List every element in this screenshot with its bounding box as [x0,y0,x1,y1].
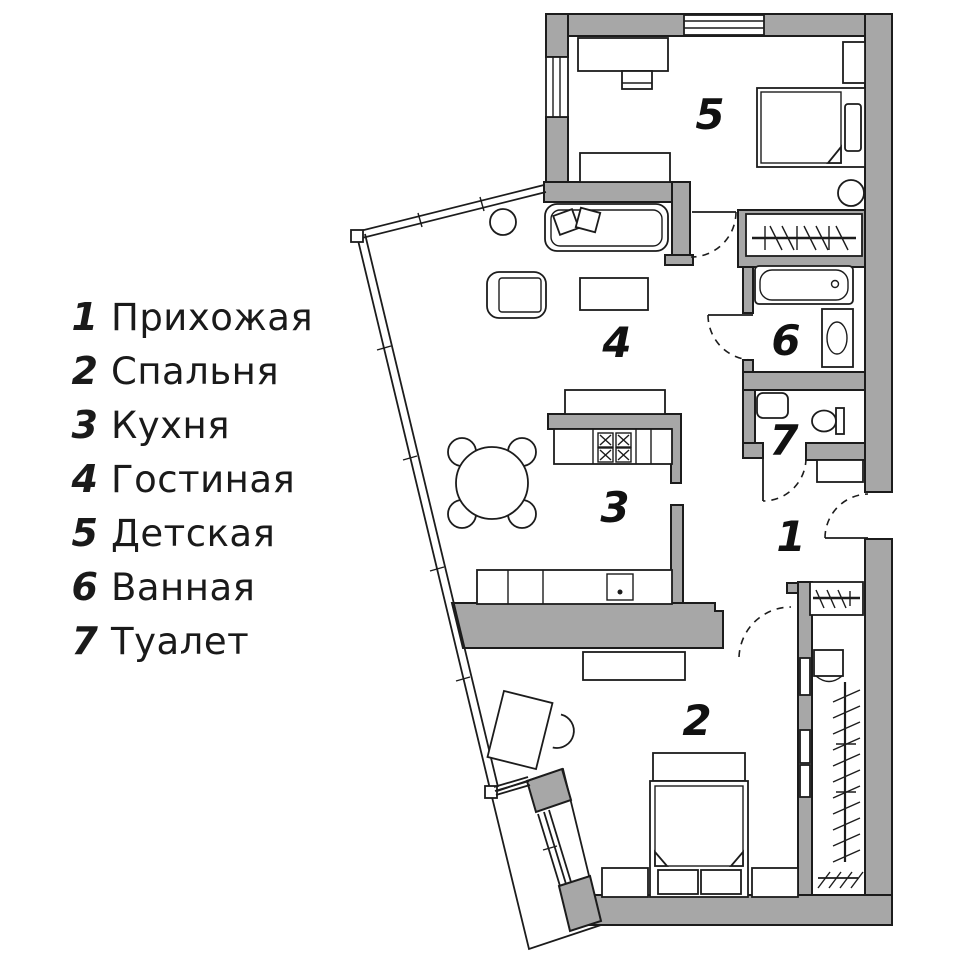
room-label-7: 7 [769,416,799,465]
kitchen-counter [477,570,672,604]
dining-table [448,438,536,528]
closet-hangers [746,214,862,256]
window-top [684,15,764,35]
hall-cabinet [817,460,863,482]
window-left [546,57,568,117]
floorplan-page: 1 Прихожая 2 Спальня 3 Кухня 4 Гостиная … [0,0,960,960]
room-label-3: 3 [600,483,629,532]
coffee-table [580,278,648,310]
nightstand-right [752,868,798,897]
toilet-bowl [812,408,844,434]
kids-nightstand [843,42,865,83]
room-label-1: 1 [776,512,805,561]
toilet-washbasin [757,393,788,418]
bedroom-wardrobe [814,650,863,888]
floorplan-drawing: 5 4 3 6 7 1 2 [0,0,960,960]
room-label-5: 5 [695,90,724,139]
coat-closet [810,582,863,615]
sofa [545,204,668,251]
room-label-4: 4 [601,318,631,367]
armchair [487,272,546,318]
bathroom-sink [822,309,853,367]
kids-desk [578,38,668,89]
kids-bed [757,88,865,167]
bathtub [755,266,853,304]
bedroom-dresser [583,652,685,680]
side-table [490,209,516,235]
room-label-6: 6 [771,316,800,365]
kids-stool [838,180,864,206]
nightstand-left [602,868,648,897]
bedroom-desk [488,691,580,776]
double-bed [650,753,748,897]
room-label-2: 2 [682,696,711,745]
kids-dresser [580,153,670,182]
